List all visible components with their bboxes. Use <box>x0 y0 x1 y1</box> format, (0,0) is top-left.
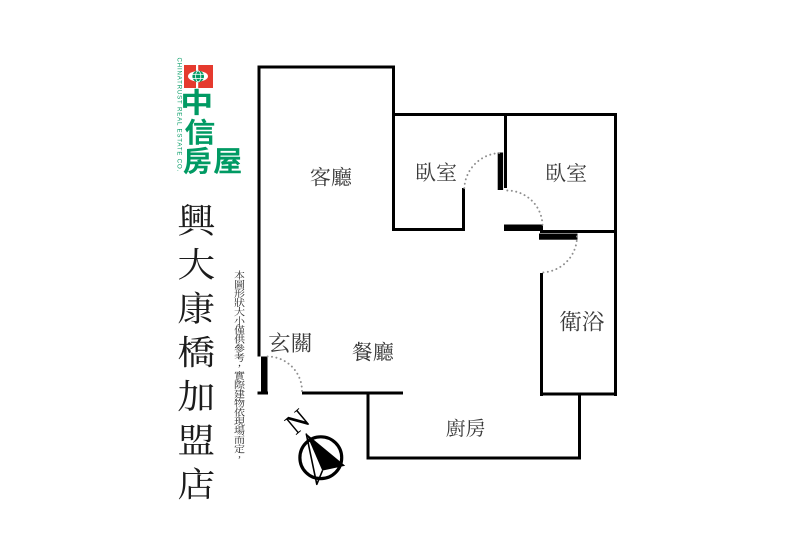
svg-text:CHINATRUST REAL ESTATE CO.: CHINATRUST REAL ESTATE CO. <box>176 58 183 172</box>
